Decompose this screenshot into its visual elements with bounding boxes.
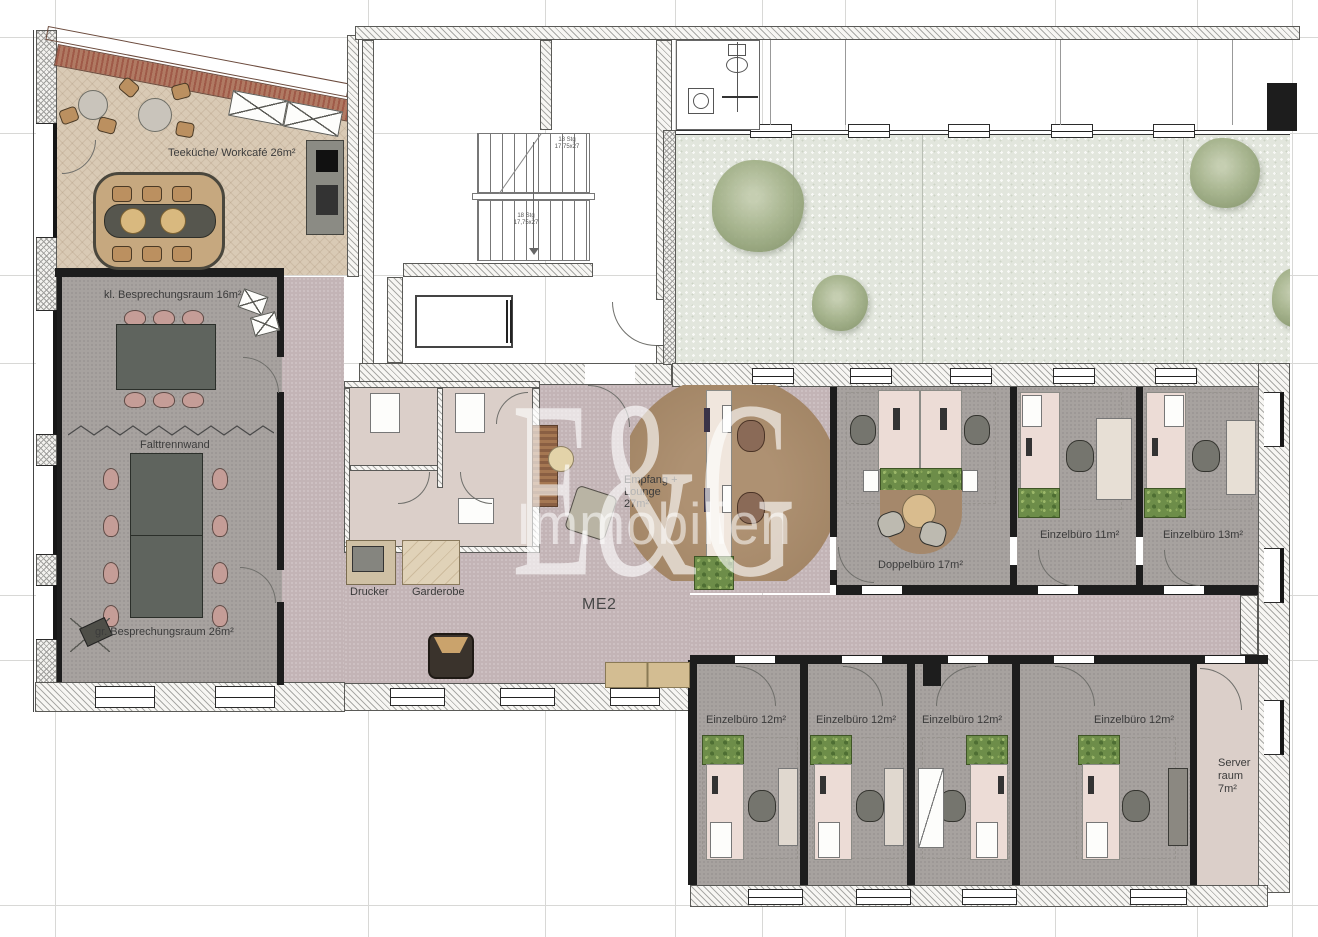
dining-chair [112,186,132,202]
window [748,889,803,905]
door-opening [862,586,902,594]
elevator [415,295,513,348]
window [850,368,892,384]
corridor-label: ME2 [582,596,616,614]
monitor [704,488,710,512]
wall-doppelbuero-left [830,570,837,585]
window [36,310,57,435]
elevator-doors [506,300,512,343]
room-label: Einzelbüro 12m² [706,714,786,726]
window [1053,368,1095,384]
table-decor [160,208,186,234]
cafe-chair [175,121,195,139]
window [962,889,1017,905]
desk-tray [1164,395,1184,427]
wall-teekueche-right [347,35,359,277]
monitor [1026,438,1032,456]
dining-chair [142,186,162,202]
office-chair [1122,790,1150,822]
door-opening [948,656,988,663]
tree [1272,268,1290,328]
office-chair [850,415,876,445]
sink-basin [693,93,709,109]
wall-partition [1136,565,1143,585]
printer [352,546,384,572]
monitor [1152,438,1158,456]
sideboard [884,768,904,846]
wall-top [355,26,1300,40]
sideboard [1226,420,1256,495]
grid-line [1183,135,1184,365]
tree [712,160,804,252]
plant-box [1018,488,1060,518]
wall-top-strip [540,40,552,130]
dining-chair [172,246,192,262]
wall-partition [1010,387,1017,537]
wall-small-rooms-top [344,381,540,388]
wall-corridor-end [1240,595,1258,655]
monitor [1088,776,1094,794]
cabinet [370,393,400,433]
meeting-table [116,324,216,390]
floor-plan: 18 Stg 17,75x27 18 Stg 17,75x27 Teeküche… [0,0,1318,937]
sideboard-dark [1168,768,1188,846]
stairs-note: 18 Stg [545,137,589,144]
grid-line [793,135,794,365]
window [500,688,555,706]
stairs-note: 17,75x27 [545,144,589,151]
meeting-chair [103,562,119,584]
window [950,368,992,384]
monitor [712,776,718,794]
floor-corridor-east [690,595,1240,655]
grid-line [1292,0,1293,937]
room-label: Falttrennwand [140,439,210,451]
monitor [998,776,1004,794]
meeting-chair [212,605,228,627]
wall-bottom-left [35,682,345,712]
wall-under-stairs [403,263,593,277]
wall-stub [1232,40,1233,125]
wall-partition [800,664,808,885]
wall-meeting-right [277,392,284,570]
office-chair [737,420,765,452]
window [36,123,57,238]
desk-pc [818,822,840,858]
stairs-walkline [533,142,534,250]
stairs-note: 17,75x27 [504,220,548,227]
wall-meeting-left [57,277,62,682]
wall-courtyard-left [663,130,676,365]
door-opening [585,364,635,384]
monitor [704,408,710,432]
window [610,688,660,706]
meeting-chair [212,562,228,584]
wall-small-rooms-mid [437,388,443,488]
office-chair [1192,440,1220,472]
shower-pipe [737,42,738,112]
monitor [893,408,900,430]
meeting-chair [153,392,175,408]
side-table [548,446,574,472]
wall-partition [1012,664,1020,885]
table-decor [120,208,146,234]
plant-box [694,556,734,590]
wall-partition [1010,565,1017,585]
monitor [940,408,947,430]
room-label-line: Lounge [624,486,678,498]
room-label: Garderobe [412,586,465,598]
desk-tray [722,405,732,433]
stairs-label-lower: 18 Stg 17,75x27 [504,213,548,227]
side-table [962,470,978,492]
office-chair [856,790,884,822]
window [1264,700,1284,755]
tree [1190,138,1260,208]
stove [316,150,338,172]
door-opening [1205,656,1245,663]
plant-box [702,735,744,765]
meeting-chair [103,515,119,537]
window [948,124,990,138]
window [752,368,794,384]
door-opening [1164,586,1204,594]
room-label: Teeküche/ Workcafé 26m² [168,147,296,159]
wall-elevator-left [387,277,403,363]
monitor [820,776,826,794]
wardrobe [402,540,460,585]
wall-pillar [923,664,941,686]
plant-box [880,468,962,492]
desk-pc [1086,822,1108,858]
meeting-chair [182,392,204,408]
tree [812,275,868,331]
dining-chair [172,186,192,202]
door-opening [842,656,882,663]
wall-small-rooms-mid [350,465,438,471]
window [848,124,890,138]
room-label-line: raum [1218,770,1250,783]
room-label: Einzelbüro 12m² [1094,714,1174,726]
office-chair [1066,440,1094,472]
room-label: Einzelbüro 12m² [922,714,1002,726]
wall-outline [33,30,34,712]
stairs-note: 18 Stg [504,213,548,220]
door-opening [1054,656,1094,663]
room-label: Einzelbüro 12m² [816,714,896,726]
plant-box [966,735,1008,765]
room-label-line: Server [1218,757,1250,770]
door-opening [1038,586,1078,594]
cafe-table [78,90,108,120]
room-label: Server raum 7m² [1218,757,1250,796]
folding-partition [68,423,274,437]
window [36,585,57,640]
office-chair [737,492,765,524]
room-label-line: 7m² [1218,783,1250,796]
wall-partition [907,664,915,885]
towel-bar [722,96,758,98]
door-arc [612,302,656,346]
room-label: Doppelbüro 17m² [878,559,963,571]
floor-corridor-west [282,277,344,685]
stairs-arrow [529,248,539,255]
dining-chair [112,246,132,262]
window [1153,124,1195,138]
room-label: gr. Besprechungsraum 26m² [95,626,234,638]
stairs-label-upper: 18 Stg 17,75x27 [545,137,589,151]
wall-meeting-right [277,602,284,685]
window [215,686,275,708]
wall-server-left [1190,664,1197,885]
sideboard [778,768,798,846]
cabinet-diagonal [918,768,944,848]
plant-box [1144,488,1186,518]
room-label: Drucker [350,586,389,598]
office-chair [748,790,776,822]
balcony-block [1267,83,1297,131]
meeting-chair [103,468,119,490]
meeting-chair [212,515,228,537]
meeting-chair [212,468,228,490]
window [1264,392,1284,447]
bench [605,662,690,688]
room-label: Einzelbüro 13m² [1163,529,1243,541]
dining-chair [142,246,162,262]
window [1264,548,1284,603]
desk-tray [722,485,732,513]
office-chair [964,415,990,445]
window [95,686,155,708]
wall-doppelbuero-left [830,387,837,537]
wall-stub [845,40,846,125]
desk-tray [1022,395,1042,427]
meeting-chair [124,392,146,408]
wc-room [676,40,760,130]
window [1130,889,1187,905]
wall-stub [770,40,771,125]
room-label-line: Empfang + [624,474,678,486]
window [1155,368,1197,384]
room-label: kl. Besprechungsraum 16m² [104,289,242,301]
desk-double [878,390,962,470]
window [856,889,911,905]
wall-partition [1136,387,1143,537]
wall-bottom-row-left [688,660,697,885]
window [36,465,57,555]
wall-core-left [362,40,374,385]
room-label: Empfang + Lounge 27m² [624,474,678,510]
window [390,688,445,706]
side-table [863,470,879,492]
desk-pc [976,822,998,858]
desk-pc [710,822,732,858]
plant-box [810,735,852,765]
cafe-table [138,98,172,132]
plant-box [1078,735,1120,765]
meeting-table-large [130,453,203,618]
courtyard [676,135,1290,365]
kitchen-appliance [316,185,338,215]
room-label: Einzelbüro 11m² [1040,529,1119,541]
grid-line [922,135,923,365]
wall-stub [1060,40,1061,125]
cabinet [455,393,485,433]
door-opening [735,656,775,663]
window [1051,124,1093,138]
wall-meeting-right [277,277,284,357]
room-label-line: 27m² [624,498,678,510]
sideboard [1096,418,1132,500]
